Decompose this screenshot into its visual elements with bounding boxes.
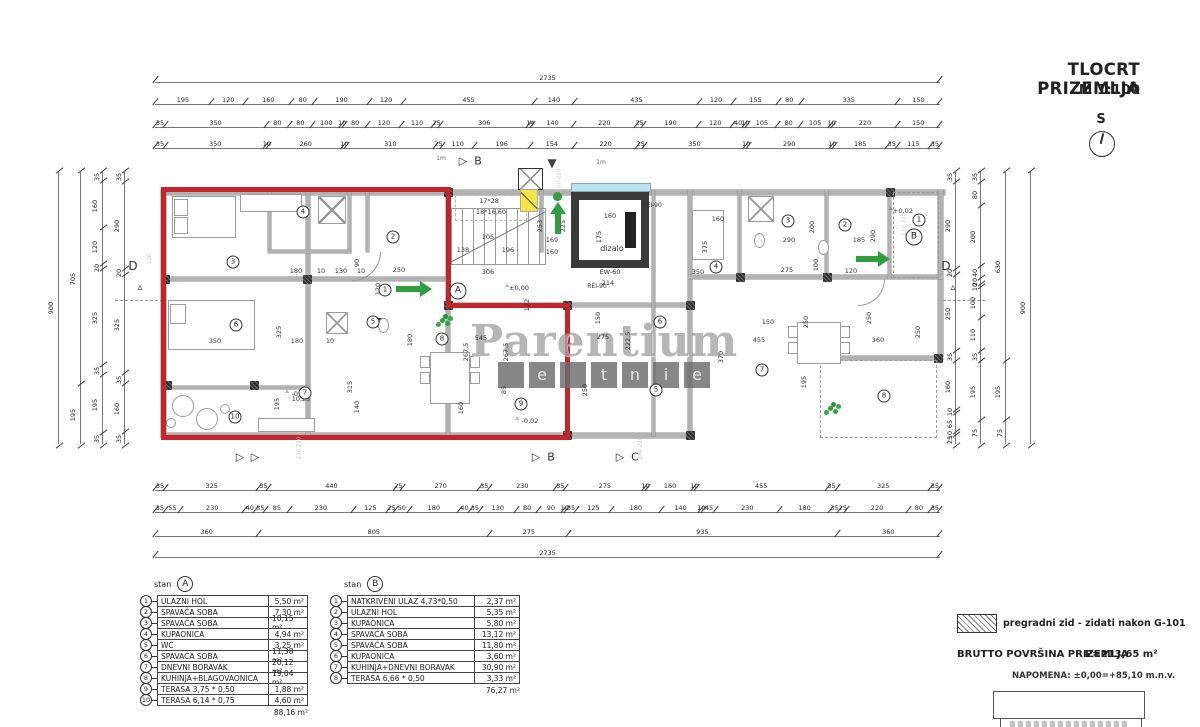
dimension-value: 35	[93, 435, 101, 443]
dimension-value: 290	[113, 220, 121, 232]
plan-label: D	[128, 260, 137, 272]
plan-label: 1m	[436, 156, 446, 162]
dimension-chain: 3555230403585230125255018040351308090103…	[155, 512, 940, 513]
legend-header: stanA	[154, 576, 308, 592]
dimension-value: 935	[696, 528, 708, 536]
plan-label: ▵	[515, 415, 518, 422]
plan-label: 350	[692, 269, 704, 276]
plan-label: 290	[870, 230, 877, 242]
floor-plan-sheet: TLOCRT PRIZEMLJA M 1:100 S	[0, 0, 1200, 727]
dimension-value: 120	[91, 241, 99, 253]
room-number-circle: 8	[878, 390, 891, 403]
legend-row-number: 10	[140, 694, 152, 706]
dimension-value: 35	[115, 173, 123, 181]
dimension-value: 120	[709, 119, 721, 127]
dimension-value: 2735	[539, 74, 556, 82]
dimension-value: 290	[783, 140, 795, 148]
plan-label: 10	[326, 338, 334, 345]
unit-marker-a: A	[450, 283, 467, 300]
dimension-value: 25	[946, 436, 954, 444]
legend-room-name: TERASA 6,66 * 0,50	[347, 672, 475, 684]
plan-label: 85	[501, 386, 508, 394]
dimension-chain: 63019575	[1005, 172, 1006, 444]
room-number-circle: 3	[782, 215, 795, 228]
title-block-box	[993, 691, 1145, 719]
dimension-value: 80	[351, 119, 359, 127]
plan-label: 140	[354, 401, 361, 413]
plan-label: 130	[335, 268, 347, 275]
room-number-circle: 5	[650, 384, 663, 397]
legend-room-area: 3,33 m²	[474, 672, 520, 684]
dimension-value: 220	[871, 504, 883, 512]
plan-label: 90	[354, 259, 361, 267]
plan-label: -0,02	[522, 418, 539, 425]
dimension-value: 45	[705, 504, 713, 512]
dimension-value: 160	[664, 482, 676, 490]
plan-label: 122	[524, 299, 531, 311]
dimension-value: 230	[315, 504, 327, 512]
dimension-value: 260	[299, 140, 311, 148]
plan-label: 160	[458, 402, 465, 414]
legend-unit-badge: A	[177, 576, 193, 592]
dimension-value: 35	[971, 173, 979, 181]
dimension-value: 195	[994, 386, 1002, 398]
dimension-value: 50	[398, 504, 406, 512]
dimension-chain: 705195	[80, 172, 81, 444]
dimension-chain: 3535010260103102511019615422025350102901…	[155, 148, 940, 149]
dimension-value: 200	[969, 231, 977, 243]
dimension-value: 80	[273, 119, 281, 127]
dimension-chain: 2735	[155, 82, 940, 83]
legend-room-area: 4,60 m²	[268, 694, 308, 706]
dimension-value: 85	[273, 504, 281, 512]
dimension-value: 360	[882, 528, 894, 536]
dimension-value: 195	[969, 386, 977, 398]
dimension-value: 120	[710, 96, 722, 104]
plan-label: 275	[597, 334, 609, 341]
plan-label: 375	[702, 241, 709, 253]
dimension-value: 350	[688, 140, 700, 148]
plan-label: 290	[783, 237, 795, 244]
dimension-value: 195	[91, 399, 99, 411]
plan-label: 196	[502, 247, 514, 254]
roof-hatch-symbol	[518, 168, 543, 190]
dimension-value: 80	[523, 504, 531, 512]
elevator-blue-strip	[571, 183, 651, 192]
legend-room-name: TERASA 6,14 * 0,75	[157, 694, 269, 706]
dimension-value: 35	[93, 367, 101, 375]
dimension-value: 35	[115, 435, 123, 443]
plan-label: 10	[357, 268, 365, 275]
dimension-value: 80	[971, 191, 979, 199]
dimension-value: 120	[222, 96, 234, 104]
dimension-value: 250	[944, 308, 952, 320]
plan-label: 267,5	[463, 343, 470, 362]
dimension-value: 190	[664, 119, 676, 127]
room-number-circle: 7	[299, 387, 312, 400]
dimension-value: 220	[859, 119, 871, 127]
plan-label: dizalo	[600, 245, 624, 253]
plan-label: 250	[866, 312, 873, 324]
legend-header: stanB	[344, 576, 520, 592]
dimension-value: 140	[548, 96, 560, 104]
dimension-value: 180	[630, 504, 642, 512]
room-number-circle: 1	[913, 214, 926, 227]
watermark-letter: n	[622, 362, 648, 388]
dimension-value: 40	[971, 269, 979, 277]
room-number-circle: 4	[710, 261, 723, 274]
plan-label: 225	[560, 220, 567, 232]
plan-label: 18*16,60	[476, 209, 506, 216]
dimension-value: 35	[946, 173, 954, 181]
dimension-value: 120	[380, 96, 392, 104]
dimension-value: 110	[452, 140, 464, 148]
unit-marker-b: B	[906, 229, 923, 246]
dimension-chain: 35290203253516035	[124, 172, 125, 444]
dimension-chain: 35160120203253519535	[102, 172, 103, 444]
room-number-circle: 3	[227, 256, 240, 269]
dimension-value: 350	[209, 140, 221, 148]
plan-label: C	[631, 452, 639, 463]
plan-label: 105	[482, 234, 494, 241]
dimension-value: 125	[587, 504, 599, 512]
dimension-value: 160	[944, 380, 952, 392]
plan-label: 253	[537, 220, 544, 232]
dimension-value: 140	[674, 504, 686, 512]
dimension-value: 190	[335, 96, 347, 104]
dimension-value: 455	[462, 96, 474, 104]
dimension-value: 80	[915, 504, 923, 512]
dimension-value: 80	[784, 119, 792, 127]
legend-table-stan-b: stanB1NATKRIVENI ULAZ 4,73*0,502,37 m²2U…	[330, 576, 520, 695]
room-number-circle: 8	[436, 333, 449, 346]
plan-label: 195	[274, 398, 281, 410]
dimension-value: 290	[944, 220, 952, 232]
plan-label: 455	[753, 337, 765, 344]
plan-label: ±0,00	[509, 285, 529, 292]
dimension-chain: 3535080801001080120110253061414022025190…	[155, 127, 940, 128]
room-number-circle: 1	[379, 284, 392, 297]
dimension-chain: 3532535440252703523035275101601045535325…	[155, 490, 940, 491]
plan-label: 100 220	[557, 169, 563, 192]
dimension-value: 360	[200, 528, 212, 536]
watermark-text: Parentium	[470, 316, 738, 367]
legend-total: 88,16 m²	[140, 708, 308, 717]
dimension-value: 220	[599, 140, 611, 148]
plan-label: 180	[290, 268, 302, 275]
legend-table-stan-a: stanA1ULAZNI HOL5,50 m²2SPAVAĆA SOBA7,30…	[140, 576, 308, 717]
room-number-circle: 4	[297, 206, 310, 219]
plan-label: EW-60	[600, 269, 621, 276]
dimension-value: 325	[91, 312, 99, 324]
plan-label: 160	[712, 216, 724, 223]
dimension-value: 325	[113, 319, 121, 331]
plan-label: 222,5	[625, 332, 632, 351]
dimension-value: 160	[91, 200, 99, 212]
room-number-circle: 10	[229, 411, 242, 424]
dimension-value: 55	[168, 504, 176, 512]
dimension-value: 705	[69, 272, 77, 284]
room-number-circle: 2	[387, 231, 400, 244]
plan-label: ▵	[950, 283, 955, 293]
plan-label: 230 220	[297, 437, 303, 460]
plan-label: ▵	[505, 282, 508, 289]
plan-label: 138	[457, 247, 469, 254]
plan-label: 1m	[596, 160, 606, 166]
dimension-chain: 35290202503516010651025	[955, 172, 956, 444]
plan-label: 17*28	[479, 198, 499, 205]
dimension-chain: 35802004020101001103519575	[980, 172, 981, 444]
plan-label: ▷	[236, 452, 244, 463]
axis-line-left	[115, 300, 163, 301]
legend-unit-badge: B	[367, 576, 383, 592]
legend-row: 10TERASA 6,14 * 0,754,60 m²	[140, 694, 308, 706]
dimension-value: 120	[378, 119, 390, 127]
dimension-value: 2735	[539, 549, 556, 557]
plan-label: 150	[595, 312, 602, 324]
legend-row-number: 8	[330, 672, 342, 684]
plan-label: 250	[393, 267, 405, 274]
legend-header-label: stan	[154, 580, 171, 589]
dimension-value: 220	[598, 119, 610, 127]
plan-label: 160	[604, 213, 616, 220]
plan-label: 175	[596, 231, 603, 243]
room-number-circle: 7	[756, 364, 769, 377]
napomena-note: NAPOMENA: ±0,00=+85,10 m.n.v.	[1012, 671, 1175, 681]
plan-label: 120	[845, 268, 857, 275]
plan-label: D	[941, 260, 950, 272]
plan-label: ▷	[459, 156, 467, 167]
legend-total: 76,27 m²	[330, 686, 520, 695]
dimension-value: 310	[384, 140, 396, 148]
plan-label: 267,5	[503, 343, 510, 362]
dimension-value: 100	[969, 297, 977, 309]
dimension-value: 125	[364, 504, 376, 512]
dimension-value: 435	[630, 96, 642, 104]
dimension-value: 185	[854, 140, 866, 148]
dimension-value: 35	[931, 140, 939, 148]
brutto-area-value: P=213,65 m²	[1085, 649, 1158, 660]
plan-label: ▵	[285, 388, 288, 395]
room-number-circle: 5	[367, 316, 380, 329]
plan-label: REI-90	[642, 203, 662, 209]
plan-label: 150	[762, 319, 774, 326]
north-label: S	[1086, 112, 1116, 127]
plan-label: 10	[317, 268, 325, 275]
plan-label: 370	[718, 351, 725, 363]
dimension-chain: 900	[1030, 172, 1031, 444]
dimension-value: 90	[547, 504, 555, 512]
dimension-value: 80	[296, 119, 304, 127]
dimension-value: 65	[946, 419, 954, 427]
dimension-value: 270	[434, 482, 446, 490]
room-number-circle: 9	[515, 398, 528, 411]
dimension-value: 130	[492, 504, 504, 512]
dimension-value: 335	[843, 96, 855, 104]
hatch-legend-label: pregradni zid - zidati nakon G-101	[1003, 618, 1186, 629]
plan-label: 100	[813, 259, 820, 271]
dimension-value: 154	[546, 140, 558, 148]
dimension-value: 180	[798, 504, 810, 512]
plan-label: 306	[482, 269, 494, 276]
partition-hatch-swatch	[957, 614, 997, 633]
truncated-text	[1010, 721, 1130, 727]
dimension-value: 35	[946, 353, 954, 361]
plan-label: 325	[276, 326, 283, 338]
watermark-letter: e	[529, 362, 555, 388]
dimension-value: 306	[478, 119, 490, 127]
dimension-chain: 900	[58, 172, 59, 444]
dimension-value: 230	[741, 504, 753, 512]
dimension-value: 75	[996, 429, 1004, 437]
plan-label: ▷	[616, 452, 624, 463]
dimension-value: 630	[994, 261, 1002, 273]
plan-label: 250	[803, 316, 810, 328]
dimension-value: 105	[809, 119, 821, 127]
dimension-value: 150	[912, 96, 924, 104]
legend-row: 8TERASA 6,66 * 0,503,33 m²	[330, 672, 520, 684]
plan-label: ▷	[532, 452, 540, 463]
dimension-value: 150	[912, 119, 924, 127]
plan-label: 315	[347, 381, 354, 393]
plan-label: ▵	[137, 283, 142, 293]
plant-icon	[828, 406, 833, 411]
dimension-value: 35	[931, 482, 939, 490]
plan-label: REI-90	[587, 284, 607, 290]
dimension-value: 195	[177, 96, 189, 104]
room-number-circle: 6	[230, 319, 243, 332]
watermark-letter: e	[684, 362, 710, 388]
dimension-value: 35	[115, 376, 123, 384]
dimension-value: 140	[546, 119, 558, 127]
plan-label: ▼	[547, 157, 556, 169]
dimension-value: 110	[411, 119, 423, 127]
plan-label: ▵	[889, 205, 892, 212]
dimension-value: 35	[931, 504, 939, 512]
dimension-value: 160	[113, 403, 121, 415]
north-compass-icon	[1089, 131, 1115, 157]
dimension-value: 325	[877, 482, 889, 490]
dimension-value: 805	[368, 528, 380, 536]
plan-label: 185	[853, 237, 865, 244]
plan-label: B	[547, 452, 555, 463]
plan-label: 275	[781, 267, 793, 274]
dimension-value: 900	[1019, 302, 1027, 314]
dimension-value: 275	[599, 482, 611, 490]
dimension-value: 100	[320, 119, 332, 127]
dimension-value: 275	[523, 528, 535, 536]
dimension-value: 230	[516, 482, 528, 490]
dimension-value: 325	[205, 482, 217, 490]
plan-label: 160	[546, 249, 558, 256]
dimension-value: 80	[785, 96, 793, 104]
dimension-value: 75	[971, 428, 979, 436]
yellow-marker	[520, 189, 538, 212]
dimension-value: 80	[299, 96, 307, 104]
axis-line-right	[943, 300, 985, 301]
plan-label: ▷	[251, 452, 259, 463]
plan-label: 545	[475, 335, 487, 342]
plan-label: 180	[407, 334, 414, 346]
dimension-value: 110	[969, 329, 977, 341]
room-number-circle: 6	[654, 316, 667, 329]
plan-label: 195	[801, 376, 808, 388]
dimension-value: 195	[69, 408, 77, 420]
dimension-value: 440	[325, 482, 337, 490]
dimension-value: 35	[971, 353, 979, 361]
plan-label: 250	[915, 326, 922, 338]
elevator-counterweight	[625, 212, 636, 248]
plan-label: 200	[809, 221, 816, 233]
dimension-value: 105	[756, 119, 768, 127]
plan-label: 250	[582, 384, 589, 396]
dimension-value: 160	[262, 96, 274, 104]
plan-label: 350	[209, 338, 221, 345]
plan-label: 169	[546, 237, 558, 244]
drawing-scale: M 1:100	[960, 82, 1140, 98]
watermark-letter: t	[591, 362, 617, 388]
plan-label: 120	[147, 253, 153, 264]
dimension-chain: 2735	[155, 557, 940, 558]
dimension-value: 180	[428, 504, 440, 512]
dimension-value: 455	[755, 482, 767, 490]
plan-label: B	[474, 156, 482, 167]
dimension-value: 230	[206, 504, 218, 512]
dimension-value: 900	[47, 302, 55, 314]
legend-header-label: stan	[344, 580, 361, 589]
dimension-chain: 1951201608019012045514043512015580335150	[155, 104, 940, 105]
dimension-value: 196	[495, 140, 507, 148]
plan-label: 360	[872, 337, 884, 344]
watermark-letter	[498, 362, 524, 388]
plant-icon	[440, 318, 445, 323]
dimension-chain: 360805275935360	[155, 536, 940, 537]
dimension-value: 350	[209, 119, 221, 127]
plan-label: 180	[291, 338, 303, 345]
dimension-value: 155	[749, 96, 761, 104]
dimension-value: 35	[93, 173, 101, 181]
dimension-value: 115	[907, 140, 919, 148]
room-number-circle: 2	[839, 219, 852, 232]
